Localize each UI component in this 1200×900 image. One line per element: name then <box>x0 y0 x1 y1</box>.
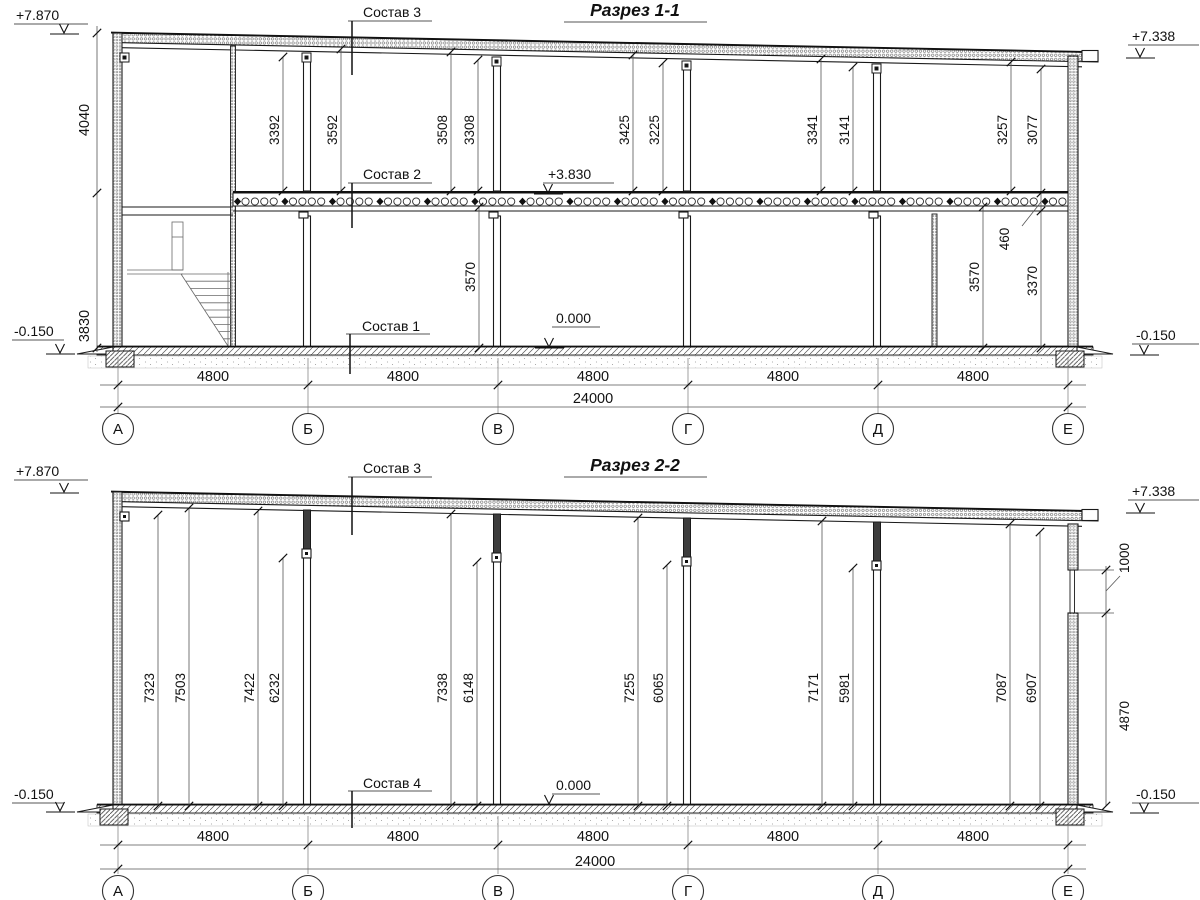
span-dim-1: 4800 <box>387 829 419 845</box>
dim2-7: 6065 <box>651 673 666 703</box>
dim2-2: 7422 <box>242 673 257 703</box>
level-floor: 0.000 <box>556 310 591 326</box>
axis-label-g: Г <box>684 421 692 438</box>
axis-label-g: Г <box>684 883 692 900</box>
dim-upper-9: 3077 <box>1025 115 1040 145</box>
foundation-right <box>1056 351 1084 367</box>
roof-parapet-right <box>1082 510 1098 521</box>
axis-label-e: Е <box>1063 883 1073 900</box>
partition-lower-de <box>932 214 937 348</box>
dim2-3: 6232 <box>267 673 282 703</box>
dim-upper-0: 3392 <box>267 115 282 145</box>
axis-label-e: Е <box>1063 421 1073 438</box>
section2-texts: Разрез 2-2 +7.870 +7.338 -0.150 -0.150 С… <box>14 455 1176 900</box>
span-dim-2: 4800 <box>577 369 609 385</box>
dim-upper-3: 3308 <box>462 115 477 145</box>
axis-bubbles <box>103 414 1084 445</box>
total-dim: 24000 <box>575 854 615 870</box>
dim2-0: 7323 <box>142 673 157 703</box>
elevation-marks <box>12 24 1199 355</box>
dim2-1: 7503 <box>173 673 188 703</box>
axis-label-v: В <box>493 883 503 900</box>
ground-stipple <box>88 356 1102 368</box>
ground-floor-slab <box>97 805 1093 813</box>
elev-top-right: +7.338 <box>1132 483 1175 499</box>
section1-title: Разрез 1-1 <box>590 0 680 20</box>
dim2-10: 7087 <box>994 673 1009 703</box>
floor-slab-hollow-core <box>233 193 1068 206</box>
dim2-window: 1000 <box>1117 543 1132 573</box>
window-right <box>1070 570 1075 613</box>
label-sostav3: Состав 3 <box>363 460 421 476</box>
dim2-9: 5981 <box>837 673 852 703</box>
drawing-canvas: Разрез 1-1 +7.870 +7.338 -0.150 -0.150 С… <box>0 0 1200 900</box>
span-dim-4: 4800 <box>957 829 989 845</box>
span-dim-1: 4800 <box>387 369 419 385</box>
dim-upper-5: 3225 <box>647 115 662 145</box>
dim2-sill: 4870 <box>1117 701 1132 731</box>
drawing-sheet: Разрез 1-1 +7.870 +7.338 -0.150 -0.150 С… <box>0 0 1200 900</box>
label-sostav3: Состав 3 <box>363 4 421 20</box>
section-1-1: Разрез 1-1 +7.870 +7.338 -0.150 -0.150 С… <box>12 0 1199 445</box>
level-slab: +3.830 <box>548 166 591 182</box>
foundation-left <box>106 351 134 367</box>
dim2-4: 7338 <box>435 673 450 703</box>
elev-top-right: +7.338 <box>1132 28 1175 44</box>
ground-floor-slab <box>97 347 1093 355</box>
dim-upper-1: 3592 <box>325 115 340 145</box>
elev-bot-left: -0.150 <box>14 786 54 802</box>
section1-structure <box>77 33 1113 368</box>
columns-tall <box>302 510 881 806</box>
span-dim-0: 4800 <box>197 829 229 845</box>
dim2-8: 7171 <box>806 673 821 703</box>
axis-label-d: Д <box>873 883 883 900</box>
dim-left-lower: 3830 <box>77 310 93 342</box>
foundation-left <box>100 809 128 825</box>
wall-right-upper <box>1068 524 1078 570</box>
dim-upper-8: 3257 <box>995 115 1010 145</box>
dim-upper-7: 3141 <box>837 115 852 145</box>
span-dim-0: 4800 <box>197 369 229 385</box>
span-dim-2: 4800 <box>577 829 609 845</box>
section-2-2: Разрез 2-2 +7.870 +7.338 -0.150 -0.150 С… <box>12 455 1199 900</box>
dim2-5: 6148 <box>461 673 476 703</box>
elev-top-left: +7.870 <box>16 7 59 23</box>
elev-bot-right: -0.150 <box>1136 327 1176 343</box>
staircase <box>127 222 231 346</box>
axis-label-v: В <box>493 421 503 438</box>
wall-right <box>1068 56 1078 348</box>
dim2-6: 7255 <box>622 673 637 703</box>
ground-stipple <box>88 814 1102 826</box>
dim-left-upper: 4040 <box>77 104 93 136</box>
label-sostav1: Состав 1 <box>362 318 420 334</box>
dim-upper-4: 3425 <box>617 115 632 145</box>
wall-left <box>113 33 122 348</box>
roof-parapet-right <box>1082 51 1098 62</box>
dim-upper-6: 3341 <box>805 115 820 145</box>
foundation-right <box>1056 809 1084 825</box>
dim-upper-2: 3508 <box>435 115 450 145</box>
axis-label-a: А <box>113 421 123 438</box>
dim-lower-0: 3570 <box>463 262 478 292</box>
span-dim-3: 4800 <box>767 369 799 385</box>
dim-lower-2: 3570 <box>967 262 982 292</box>
span-dim-3: 4800 <box>767 829 799 845</box>
wall-left <box>113 492 122 806</box>
axis-label-b: Б <box>303 883 313 900</box>
level-floor: 0.000 <box>556 777 591 793</box>
label-sostav2: Состав 2 <box>363 166 421 182</box>
elev-bot-right: -0.150 <box>1136 786 1176 802</box>
dim-lower-1: 460 <box>997 228 1012 251</box>
label-sostav4: Состав 4 <box>363 775 421 791</box>
axis-bubbles <box>103 876 1084 900</box>
span-dim-4: 4800 <box>957 369 989 385</box>
dim2-11: 6907 <box>1024 673 1039 703</box>
axis-label-a: А <box>113 883 123 900</box>
section2-structure <box>77 492 1113 826</box>
axis-label-b: Б <box>303 421 313 438</box>
dim-lower-3: 3370 <box>1025 266 1040 296</box>
elev-top-left: +7.870 <box>16 463 59 479</box>
elevation-marks <box>12 480 1199 813</box>
section2-title: Разрез 2-2 <box>590 455 680 475</box>
total-dim: 24000 <box>573 391 613 407</box>
elev-bot-left: -0.150 <box>14 323 54 339</box>
wall-right-lower <box>1068 613 1078 806</box>
axis-label-d: Д <box>873 421 883 438</box>
